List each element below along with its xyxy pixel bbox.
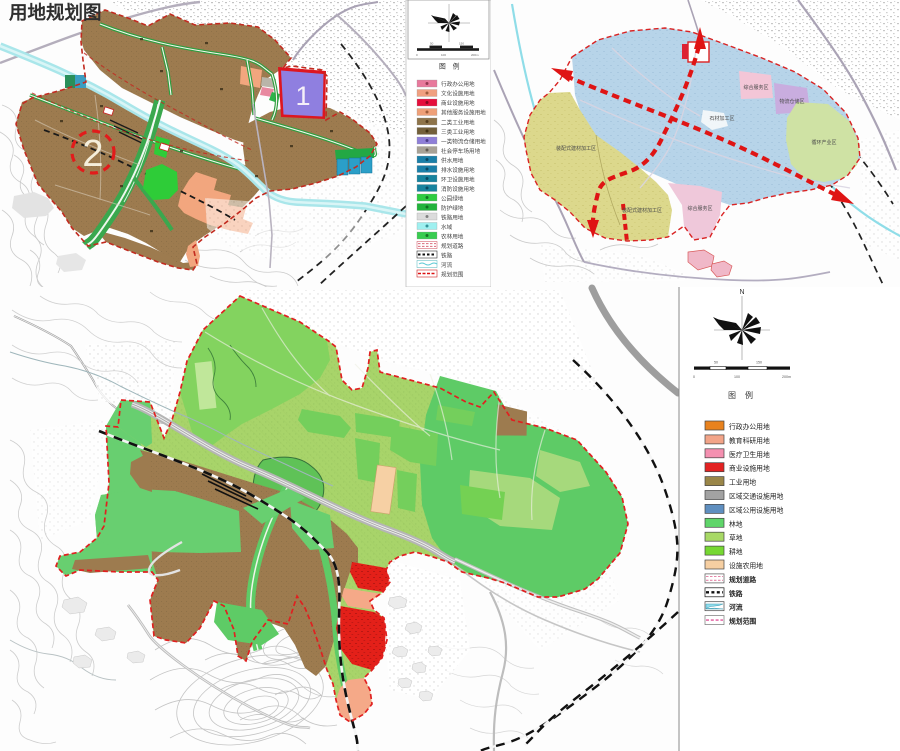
svg-text:消防设施用地: 消防设施用地	[441, 185, 475, 193]
svg-text:N: N	[739, 289, 744, 296]
svg-text:耕地: 耕地	[729, 547, 743, 556]
svg-text:社会停车场用地: 社会停车场用地	[441, 147, 481, 155]
svg-text:铁路用地: 铁路用地	[441, 213, 464, 221]
svg-text:排水设施用地: 排水设施用地	[441, 166, 475, 174]
svg-text:50: 50	[430, 42, 434, 46]
svg-text:三类工业用地: 三类工业用地	[441, 128, 475, 136]
svg-text:100: 100	[441, 53, 446, 57]
svg-text:环卫设施用地: 环卫设施用地	[441, 175, 475, 183]
svg-text:公园绿地: 公园绿地	[441, 194, 464, 202]
svg-text:150: 150	[459, 42, 464, 46]
svg-text:规划范围: 规划范围	[729, 617, 756, 626]
svg-text:防护绿地: 防护绿地	[441, 204, 464, 212]
svg-text:一类物流仓储用地: 一类物流仓储用地	[441, 137, 486, 145]
svg-text:循环产业区: 循环产业区	[811, 139, 836, 146]
svg-text:文化设施用地: 文化设施用地	[441, 89, 475, 97]
svg-text:规划道路: 规划道路	[729, 575, 756, 584]
svg-text:100: 100	[734, 375, 740, 379]
svg-text:0: 0	[693, 375, 695, 379]
svg-text:50: 50	[714, 361, 718, 365]
svg-text:图例: 图例	[728, 390, 762, 400]
svg-text:商业设施用地: 商业设施用地	[441, 99, 475, 107]
svg-text:商业设施用地: 商业设施用地	[729, 464, 770, 473]
svg-text:铁路: 铁路	[728, 589, 743, 598]
svg-text:装配式建材加工区: 装配式建材加工区	[556, 145, 596, 152]
svg-text:物流仓储区: 物流仓储区	[779, 98, 804, 105]
svg-text:林地: 林地	[729, 519, 743, 528]
svg-text:综合服务区: 综合服务区	[687, 205, 712, 212]
svg-text:200m: 200m	[782, 375, 791, 379]
svg-text:设施农用地: 设施农用地	[729, 561, 763, 570]
svg-text:200m: 200m	[471, 53, 479, 57]
svg-text:河流: 河流	[729, 603, 743, 612]
svg-text:其他服务设施用地: 其他服务设施用地	[441, 108, 486, 116]
svg-text:医疗卫生用地: 医疗卫生用地	[729, 450, 770, 459]
svg-text:2: 2	[82, 133, 103, 175]
svg-text:供水用地: 供水用地	[441, 156, 464, 164]
svg-text:区域交通设施用地: 区域交通设施用地	[729, 492, 784, 501]
svg-text:铁路: 铁路	[441, 251, 453, 259]
svg-text:草地: 草地	[729, 533, 743, 542]
svg-text:工业用地: 工业用地	[729, 478, 756, 487]
svg-text:图例: 图例	[439, 62, 467, 71]
svg-text:水域: 水域	[441, 223, 453, 231]
svg-text:用地规划图: 用地规划图	[9, 2, 102, 23]
svg-text:装配式建材加工区: 装配式建材加工区	[622, 207, 662, 214]
svg-text:1: 1	[295, 81, 310, 111]
svg-text:150: 150	[756, 361, 762, 365]
svg-text:综合服务区: 综合服务区	[743, 84, 768, 91]
svg-text:区域公用设施用地: 区域公用设施用地	[729, 505, 784, 514]
svg-text:石材加工区: 石材加工区	[709, 115, 734, 122]
svg-text:行政办公用地: 行政办公用地	[441, 80, 475, 88]
svg-text:河流: 河流	[441, 261, 453, 269]
svg-text:行政办公用地: 行政办公用地	[729, 422, 770, 431]
svg-text:农林用地: 农林用地	[441, 232, 464, 240]
svg-text:规划范围: 规划范围	[441, 270, 464, 278]
svg-text:规划道路: 规划道路	[441, 242, 464, 250]
svg-text:二类工业用地: 二类工业用地	[441, 118, 475, 126]
svg-text:教育科研用地: 教育科研用地	[729, 436, 770, 445]
